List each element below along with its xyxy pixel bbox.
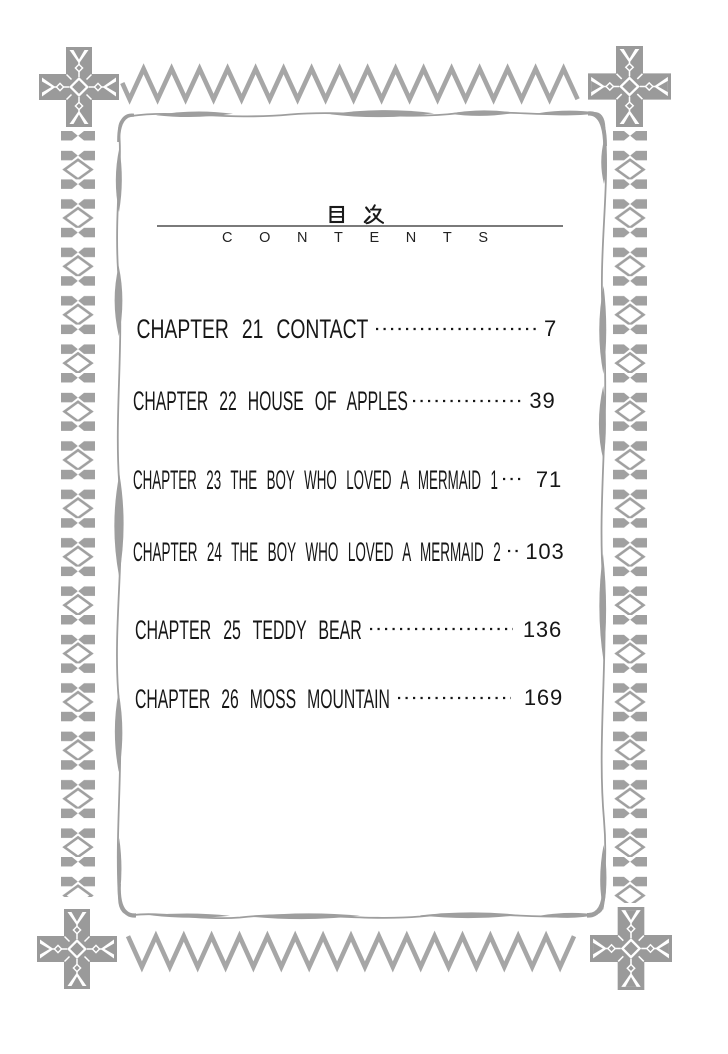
svg-text:71: 71	[536, 467, 562, 492]
svg-text:136: 136	[523, 617, 562, 642]
svg-text:39: 39	[529, 388, 555, 413]
svg-text:CHAPTER 24 THE BOY WHO LOVED A: CHAPTER 24 THE BOY WHO LOVED A MERMAID 2	[133, 537, 501, 567]
svg-text:CHAPTER 26 MOSS MOUNTAIN: CHAPTER 26 MOSS MOUNTAIN	[135, 684, 390, 715]
svg-text:7: 7	[544, 316, 557, 341]
svg-text:CHAPTER 25 TEDDY BEAR: CHAPTER 25 TEDDY BEAR	[135, 615, 362, 645]
svg-text:CHAPTER 21 CONTACT: CHAPTER 21 CONTACT	[137, 314, 369, 344]
svg-text:CHAPTER 22 HOUSE OF APPLES: CHAPTER 22 HOUSE OF APPLES	[133, 386, 408, 417]
svg-text:CHAPTER 23 THE BOY WHO LOVED A: CHAPTER 23 THE BOY WHO LOVED A MERMAID 1	[133, 465, 498, 495]
svg-text:169: 169	[524, 685, 563, 710]
svg-text:103: 103	[525, 539, 564, 564]
